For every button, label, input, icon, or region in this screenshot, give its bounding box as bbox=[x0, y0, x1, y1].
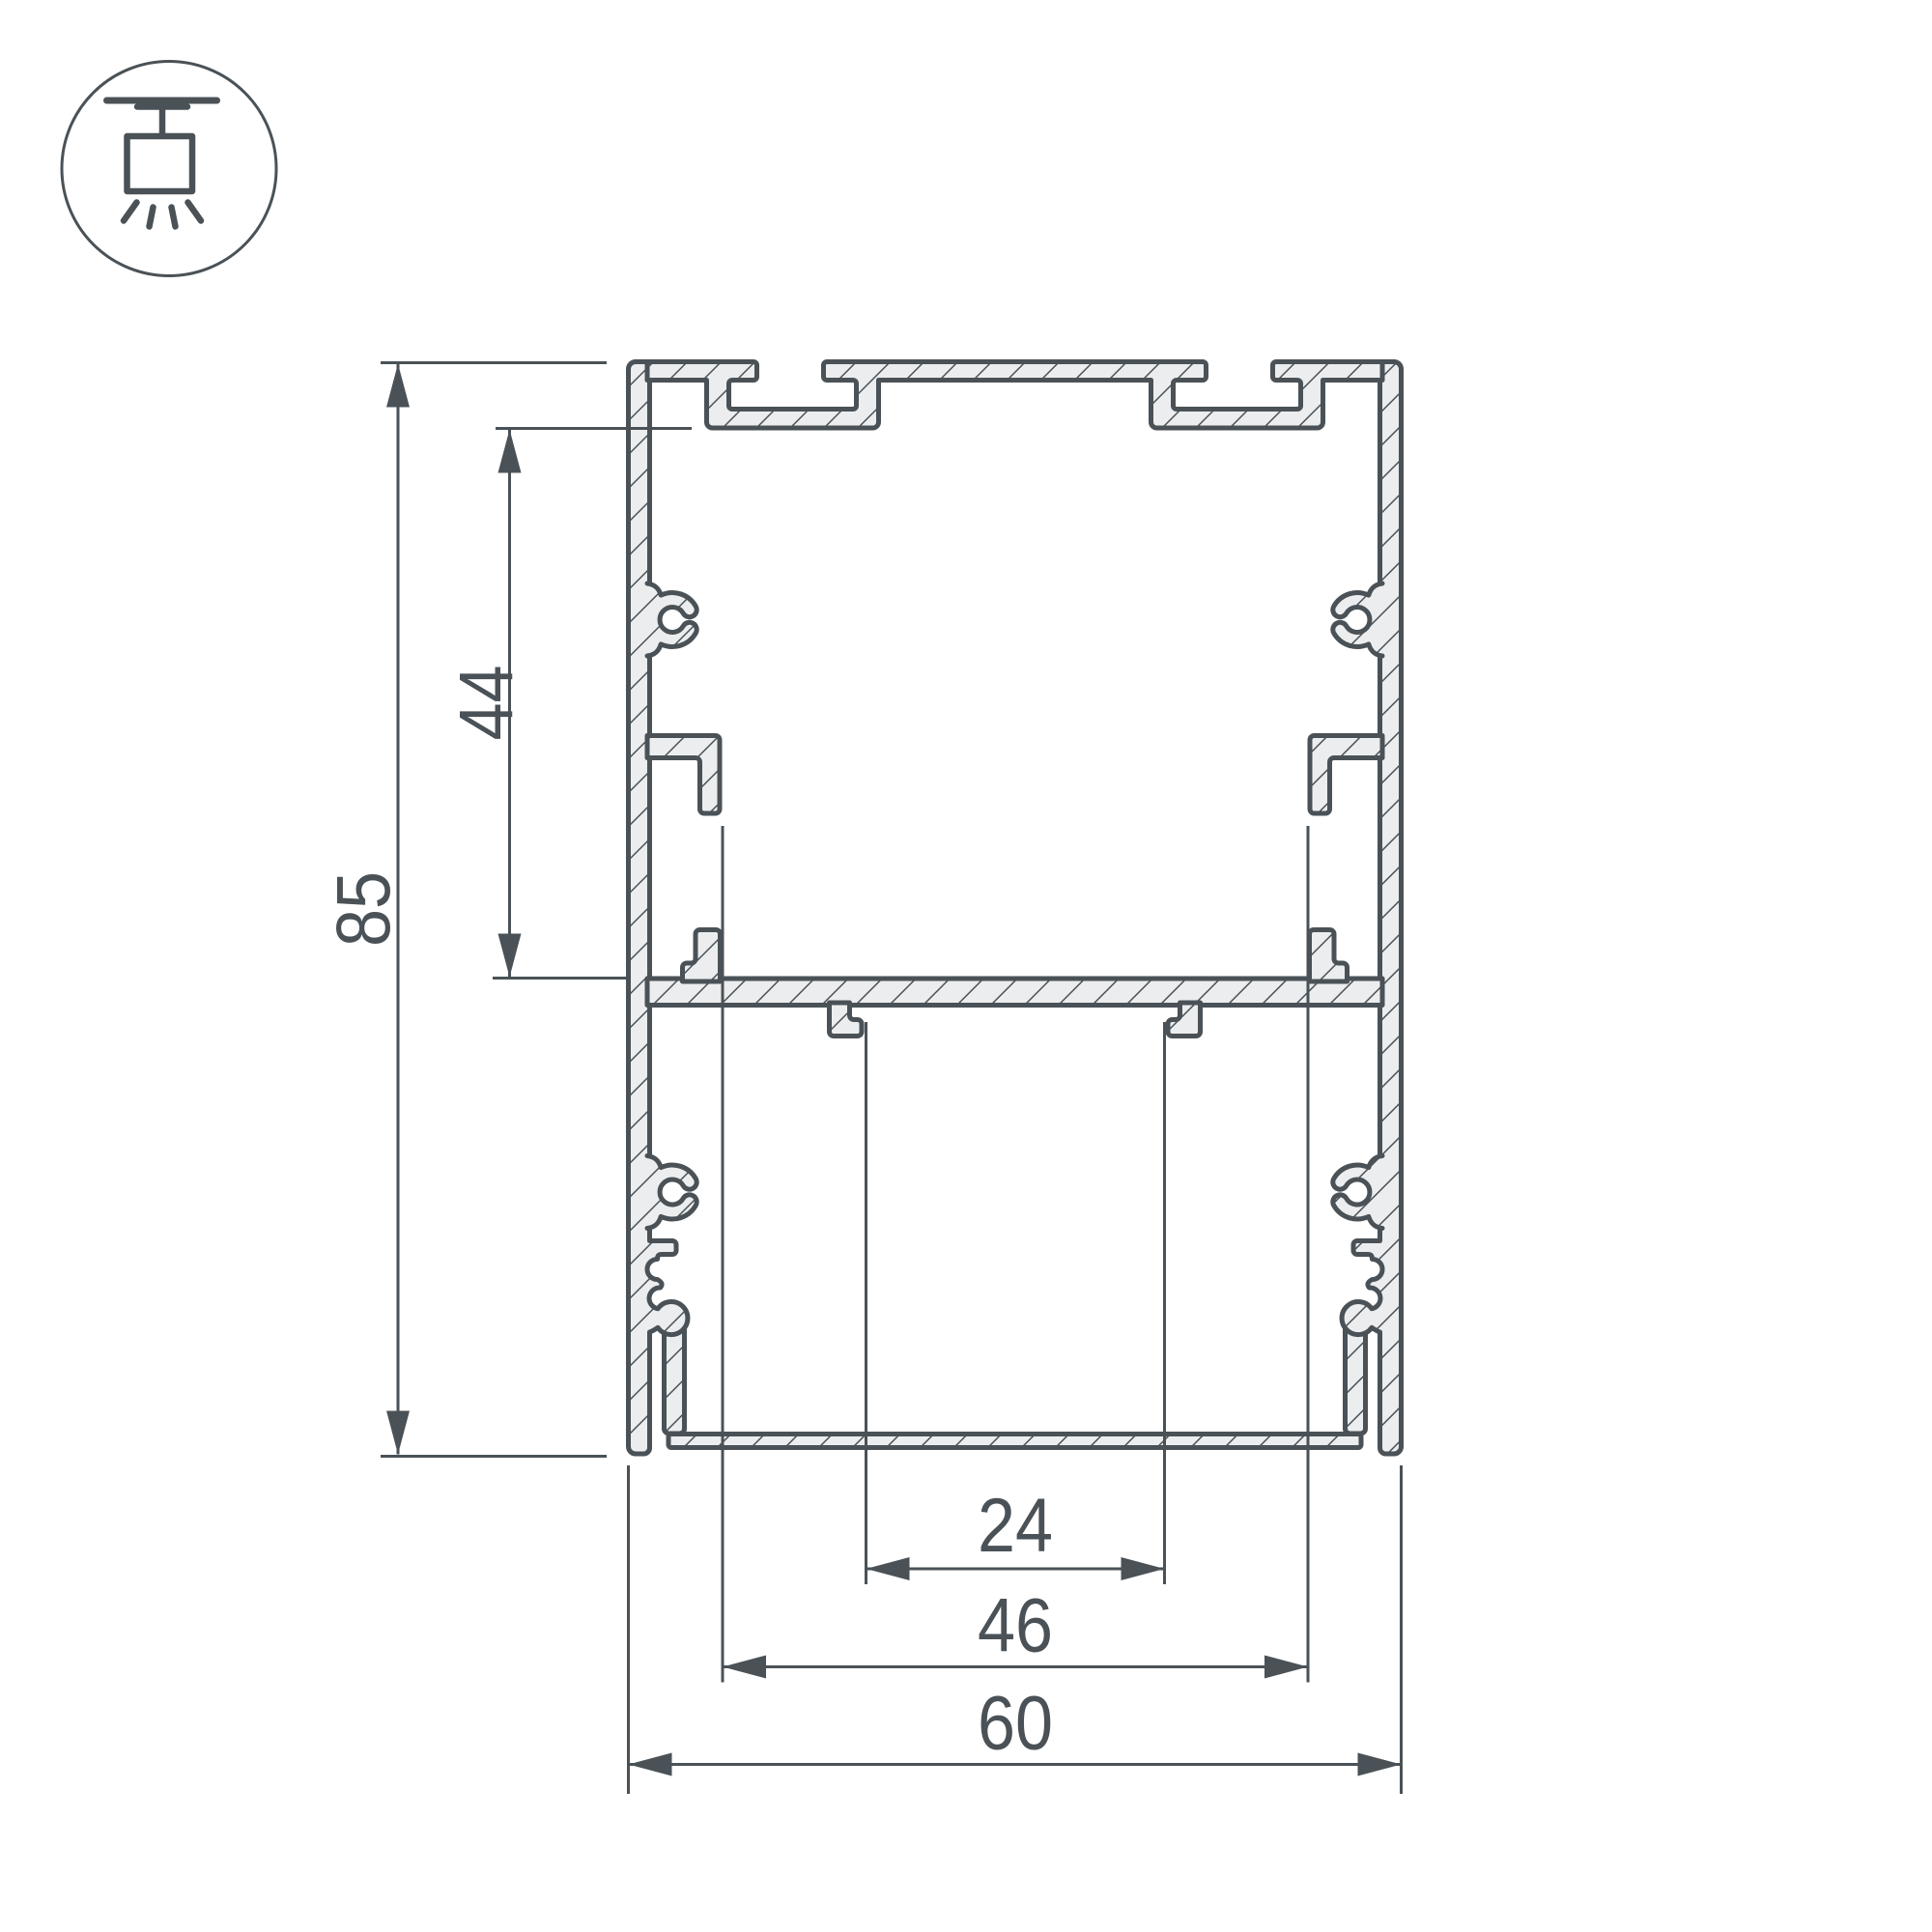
svg-text:85: 85 bbox=[320, 871, 406, 947]
svg-text:44: 44 bbox=[443, 666, 529, 741]
svg-text:46: 46 bbox=[978, 1582, 1053, 1668]
svg-text:60: 60 bbox=[978, 1680, 1053, 1766]
svg-text:24: 24 bbox=[978, 1482, 1053, 1568]
